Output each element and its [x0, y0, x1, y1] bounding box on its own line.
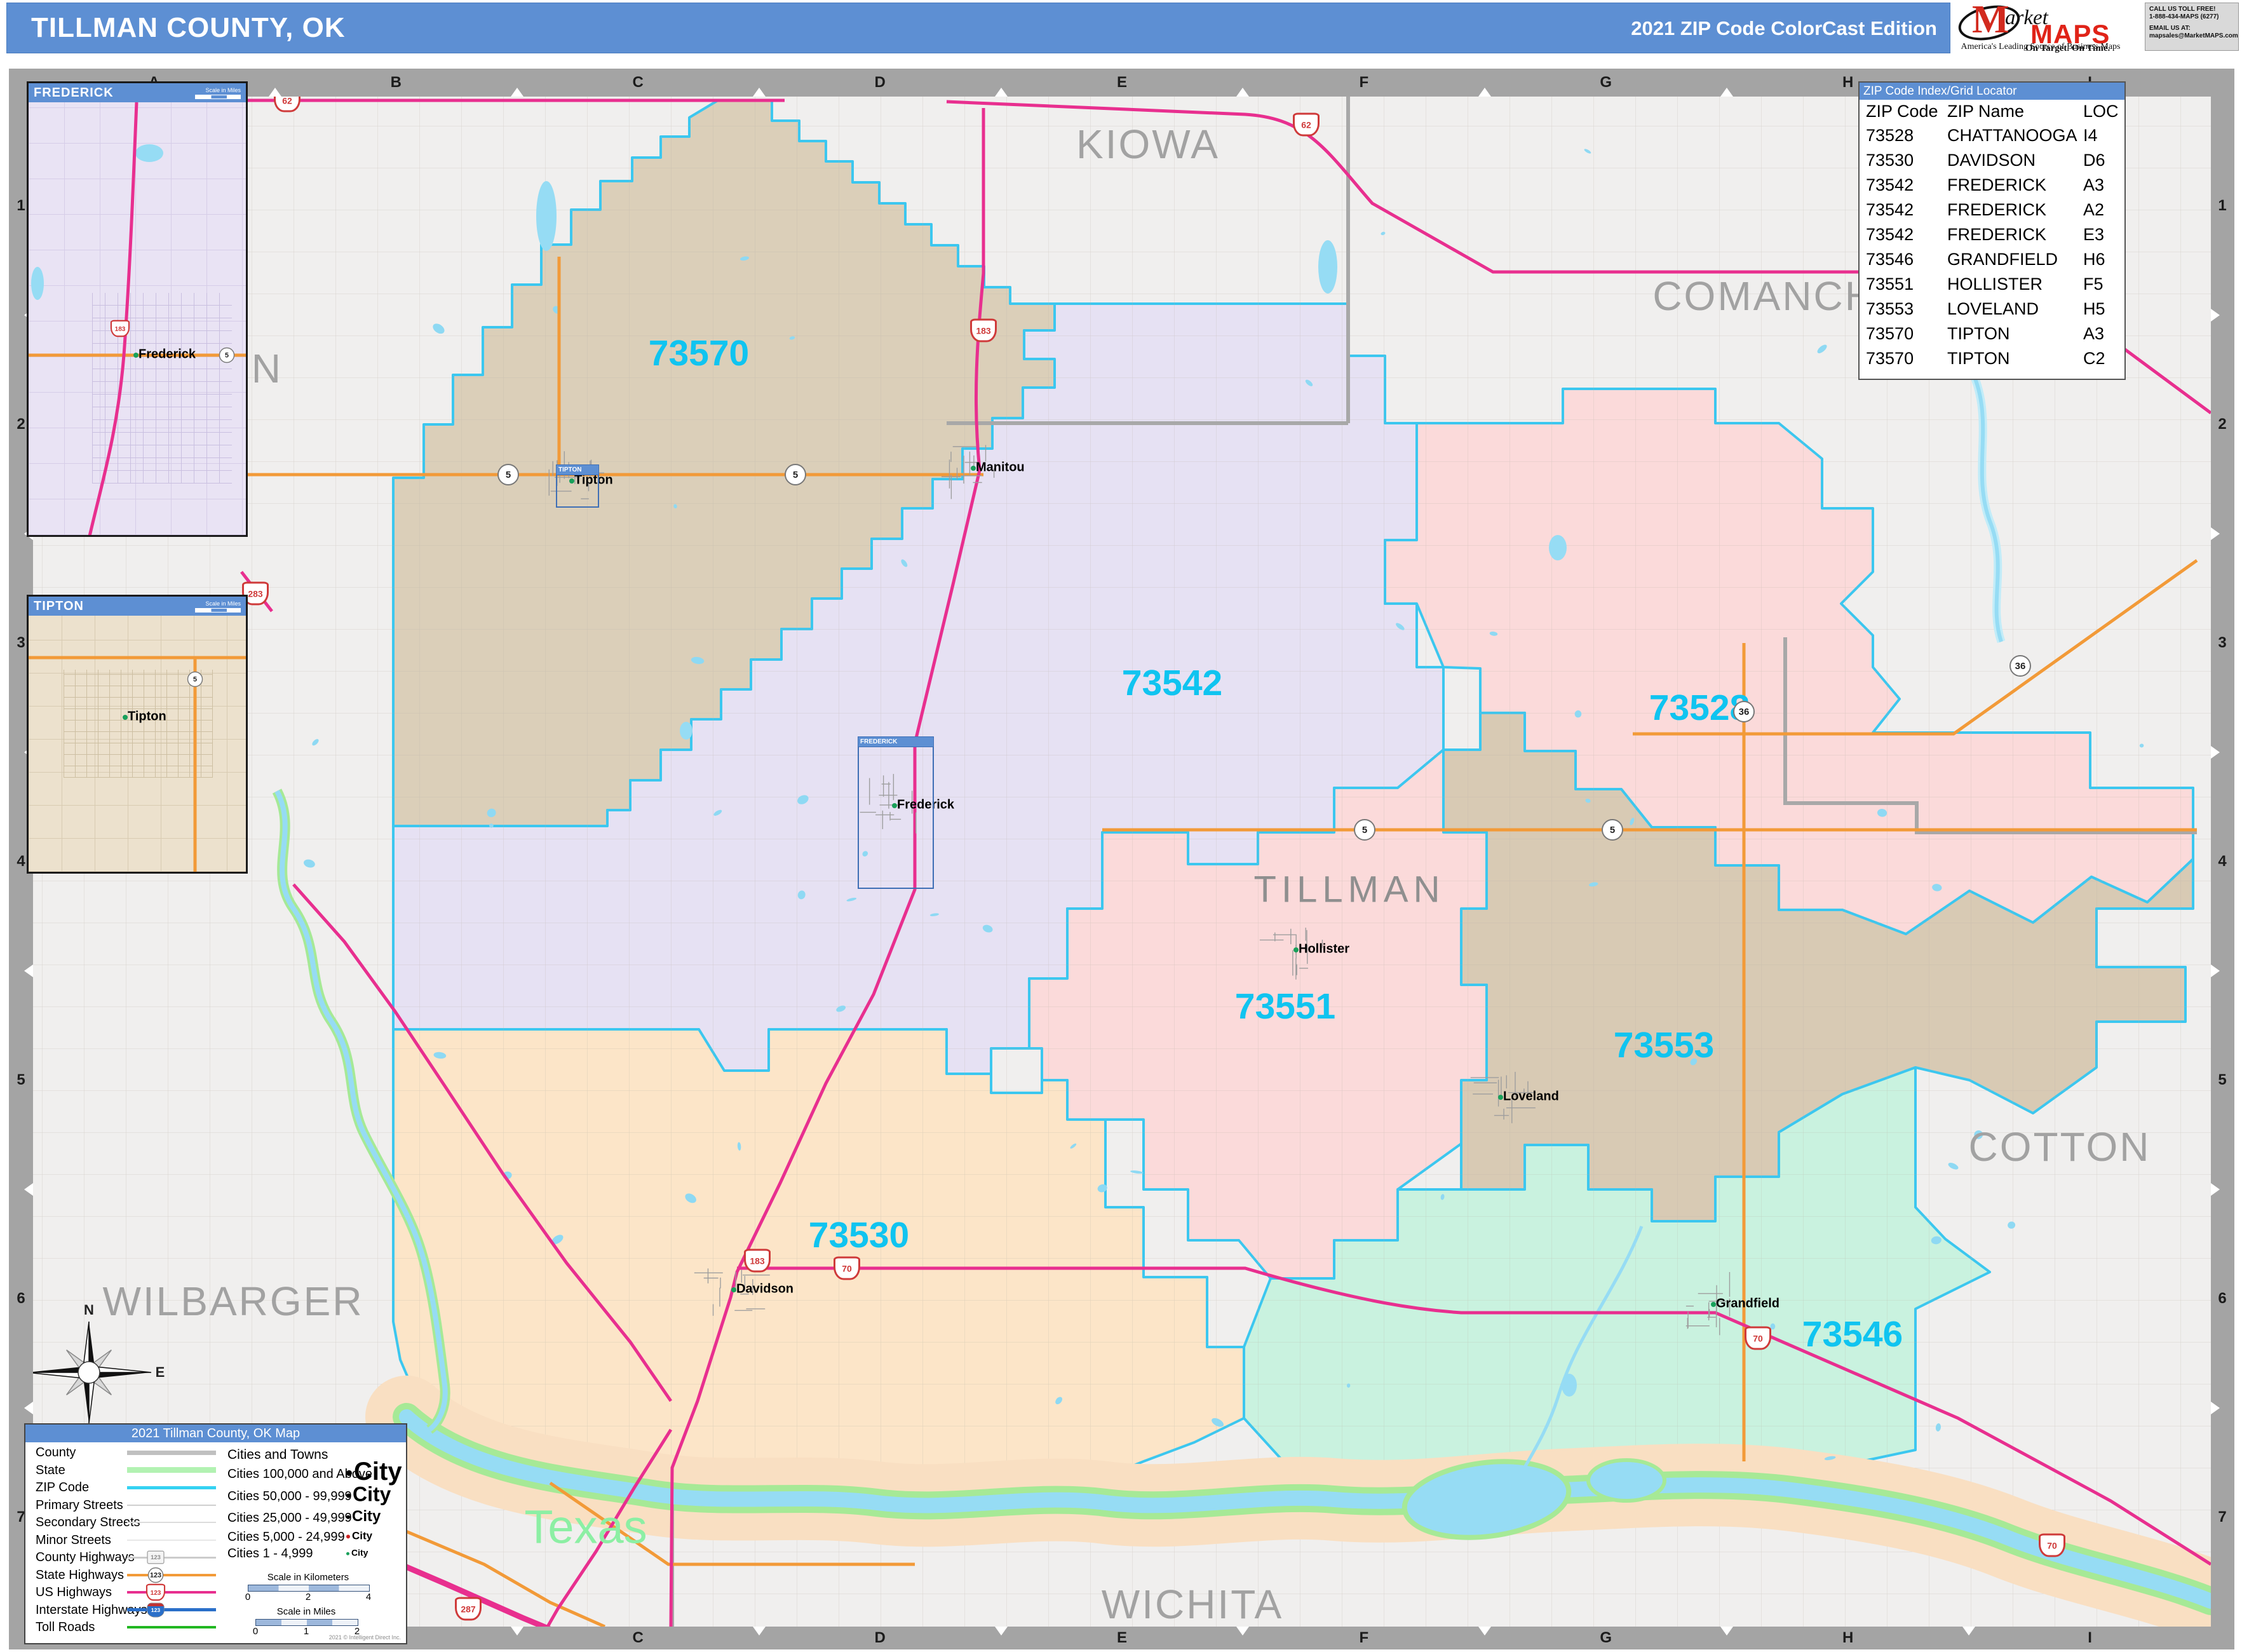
map-legend: 2021 Tillman County, OK Map CountyStateZ… [24, 1423, 407, 1644]
city-dot-loveland [1498, 1095, 1503, 1100]
inset-city-dot-frederick [133, 353, 138, 358]
grid-col-label-bottom-H: H [1842, 1629, 1853, 1647]
grid-notch-left [24, 1402, 33, 1414]
legend-label-cohwy: County Highways [36, 1550, 135, 1565]
legend-line-zip [127, 1486, 216, 1489]
grid-row-label-right-6: 6 [2218, 1290, 2226, 1308]
circle-highway-badge-36: 36 [2009, 655, 2031, 677]
legend-city-sample-2: City [346, 1508, 381, 1526]
inset-locator-label-tipton: TIPTON [556, 464, 599, 475]
grid-notch-right [2211, 746, 2220, 759]
zip-table-header-row: ZIP CodeZIP NameLOC [1860, 102, 2124, 126]
grid-col-label-G: G [1600, 74, 1612, 91]
zip-table-row-6: 73551HOLLISTERF5 [1860, 274, 2124, 299]
grid-row-label-3: 3 [17, 634, 25, 652]
inset-tipton-scalebar [195, 608, 241, 613]
legend-title: 2021 Tillman County, OK Map [25, 1425, 406, 1442]
loc-cell: A3 [2083, 175, 2104, 195]
zip-table-col-1: ZIP Name [1947, 102, 2024, 121]
inset-tipton-scale-label: Scale in Miles [205, 600, 241, 607]
grid-col-label-bottom-C: C [633, 1629, 644, 1647]
zip-code-cell: 73542 [1866, 200, 1914, 220]
circle-highway-badge-5: 5 [785, 464, 806, 485]
grid-row-label-right-5: 5 [2218, 1071, 2226, 1089]
zip-name-cell: FREDERICK [1947, 175, 2046, 195]
legend-scale-mi-tick-1: 1 [304, 1626, 309, 1637]
grid-row-label-6: 6 [17, 1290, 25, 1308]
legend-label-zip: ZIP Code [36, 1480, 89, 1495]
legend-city-class-label-1: Cities 50,000 - 99,999 [227, 1489, 352, 1504]
contact-call-2: 1-888-434-MAPS (6277) [2149, 13, 2234, 21]
legend-line-cohwy [127, 1557, 216, 1559]
grid-row-label-1: 1 [17, 197, 25, 215]
legend-label-ushwy: US Highways [36, 1585, 112, 1600]
zip-table-row-9: 73570TIPTONC2 [1860, 349, 2124, 374]
contact-email-2: mapsales@MarketMAPS.com [2149, 32, 2234, 40]
logo-subtitle-row: America's Leading Source of Business Map… [1939, 42, 2142, 52]
city-label-hollister: Hollister [1299, 942, 1349, 957]
zip-table-col-0: ZIP Code [1866, 102, 1938, 121]
lake-2 [1318, 240, 1337, 294]
us-highway-badge-287: 287 [455, 1597, 482, 1621]
grid-notch-bottom [995, 1627, 1008, 1635]
grid-col-label-E: E [1117, 74, 1127, 91]
legend-scale-km-title: Scale in Kilometers [238, 1572, 378, 1583]
legend-city-dot-2 [346, 1515, 350, 1519]
zip-label-73530: 73530 [809, 1214, 910, 1256]
city-dot-davidson [731, 1287, 736, 1292]
legend-scale-mi-tick-0: 0 [253, 1626, 258, 1637]
lake-5 [680, 722, 692, 740]
grid-col-label-C: C [633, 74, 644, 91]
zip-table-row-1: 73530DAVIDSOND6 [1860, 151, 2124, 175]
loc-cell: C2 [2083, 349, 2105, 369]
zip-table-row-2: 73542FREDERICKA3 [1860, 175, 2124, 200]
lake-1 [536, 181, 557, 251]
grid-col-label-bottom-G: G [1600, 1629, 1612, 1647]
grid-row-label-right-2: 2 [2218, 416, 2226, 433]
grid-notch-bottom [753, 1627, 766, 1635]
loc-cell: E3 [2083, 225, 2104, 245]
state-label-texas: Texas [524, 1500, 647, 1554]
county-label-kiowa: KIOWA [1076, 121, 1220, 168]
legend-line-street2 [127, 1522, 216, 1523]
grid-row-label-right-3: 3 [2218, 634, 2226, 652]
inset-frederick-scalebar [195, 95, 241, 99]
grid-row-label-2: 2 [17, 416, 25, 433]
zip-name-cell: HOLLISTER [1947, 274, 2043, 294]
city-dot-grandfield [1711, 1302, 1716, 1307]
zip-label-73551: 73551 [1235, 985, 1336, 1027]
us-highway-badge-70: 70 [2039, 1534, 2065, 1557]
legend-copyright: 2021 © Intelligent Direct Inc. [329, 1634, 401, 1641]
zip-code-cell: 73546 [1866, 250, 1914, 269]
legend-line-sthwy [127, 1574, 216, 1576]
us-highway-badge-183: 183 [970, 319, 997, 342]
grid-row-label-5: 5 [17, 1071, 25, 1089]
title-bar: TILLMAN COUNTY, OK 2021 ZIP Code ColorCa… [6, 3, 1950, 53]
grid-col-label-F: F [1360, 74, 1369, 91]
legend-line-county [127, 1451, 216, 1455]
inset-city-label-frederick: Frederick [138, 348, 196, 362]
logo-m: M [1972, 0, 2009, 43]
loc-cell: H6 [2083, 250, 2105, 269]
legend-badge-inthwy: 123 [147, 1602, 164, 1617]
inset-frederick-header: FREDERICK Scale in Miles [29, 83, 246, 102]
legend-line-inthwy [127, 1608, 216, 1611]
legend-scale-km-tick-1: 2 [306, 1592, 311, 1602]
grid-notch-top [995, 88, 1008, 97]
inset-city-dot-tipton [123, 715, 128, 720]
legend-city-class-label-4: Cities 1 - 4,999 [227, 1547, 313, 1561]
legend-label-toll: Toll Roads [36, 1620, 95, 1635]
zip-table-row-8: 73570TIPTONA3 [1860, 324, 2124, 349]
zip-code-cell: 73570 [1866, 324, 1914, 344]
legend-city-dot-1 [346, 1494, 351, 1498]
legend-label-sthwy: State Highways [36, 1568, 124, 1583]
grid-notch-bottom [1962, 1627, 1975, 1635]
legend-line-street1 [127, 1505, 216, 1506]
zip-code-cell: 73570 [1866, 349, 1914, 369]
legend-city-dot-4 [346, 1552, 349, 1555]
grid-col-label-bottom-E: E [1117, 1629, 1127, 1647]
zip-name-cell: FREDERICK [1947, 200, 2046, 220]
legend-scale-km-tick-2: 4 [366, 1592, 371, 1602]
loc-cell: A2 [2083, 200, 2104, 220]
legend-line-toll [127, 1626, 216, 1628]
legend-line-ushwy [127, 1591, 216, 1594]
legend-badge-cohwy: 123 [147, 1551, 164, 1564]
zip-table-row-5: 73546GRANDFIELDH6 [1860, 250, 2124, 274]
legend-city-sample-1: City [346, 1483, 391, 1506]
inset-locator-box-tipton: TIPTON [556, 464, 599, 508]
contact-call-1: CALL US TOLL FREE! [2149, 6, 2234, 13]
inset-frederick-scale-label: Scale in Miles [205, 87, 241, 93]
us-highway-badge-62: 62 [1293, 113, 1320, 137]
legend-label-street1: Primary Streets [36, 1498, 123, 1513]
grid-notch-right [2211, 1183, 2220, 1196]
grid-notch-bottom [1720, 1627, 1733, 1635]
zip-name-cell: CHATTANOOGA [1947, 126, 2077, 146]
grid-row-label-right-7: 7 [2218, 1508, 2226, 1526]
inset-tipton-body: Tipton5 [29, 616, 246, 872]
zip-code-cell: 73551 [1866, 274, 1914, 294]
grid-notch-right [2211, 527, 2220, 540]
zip-label-73542: 73542 [1122, 662, 1223, 704]
legend-scale-km-tick-0: 0 [245, 1592, 250, 1602]
legend-label-county: County [36, 1446, 76, 1460]
logo-subtitle-text: America's Leading Source of Business Map… [1961, 42, 2121, 51]
page: { "title_bar":{"title":"TILLMAN COUNTY, … [0, 0, 2242, 1652]
legend-city-dot-3 [346, 1534, 350, 1538]
legend-city-class-label-2: Cities 25,000 - 49,999 [227, 1511, 352, 1526]
legend-badge-ushwy: 123 [146, 1584, 165, 1601]
county-label-wichita: WICHITA [1102, 1581, 1283, 1628]
legend-cities-title: Cities and Towns [227, 1447, 328, 1463]
grid-notch-right [2211, 965, 2220, 977]
legend-badge-sthwy: 123 [148, 1567, 163, 1582]
loc-cell: I4 [2083, 126, 2098, 146]
legend-city-class-label-3: Cities 5,000 - 24,999 [227, 1530, 345, 1545]
inset-map-frederick: FREDERICK Scale in Miles Frederick1835 [27, 81, 248, 537]
legend-city-sample-0: City [346, 1458, 402, 1486]
legend-label-street3: Minor Streets [36, 1533, 111, 1548]
zip-label-73570: 73570 [649, 332, 750, 374]
inset-badge-183: 183 [111, 320, 130, 337]
zip-table-row-7: 73553LOVELANDH5 [1860, 299, 2124, 324]
grid-notch-top [511, 88, 523, 97]
county-label-tillman: TILLMAN [1254, 869, 1445, 911]
zip-table-row-4: 73542FREDERICKE3 [1860, 225, 2124, 250]
zip-name-cell: FREDERICK [1947, 225, 2046, 245]
grid-notch-right [2211, 1402, 2220, 1414]
loc-cell: F5 [2083, 274, 2104, 294]
inset-tipton-header: TIPTON Scale in Miles [29, 597, 246, 616]
zip-table-row-3: 73542FREDERICKA2 [1860, 200, 2124, 225]
legend-scale-mi-bar [255, 1619, 358, 1626]
legend-label-state: State [36, 1463, 65, 1478]
grid-notch-left [24, 965, 33, 977]
county-label-cotton: COTTON [1968, 1123, 2151, 1170]
circle-highway-badge-5: 5 [497, 464, 519, 485]
lake-3 [1549, 535, 1567, 560]
contact-box: CALL US TOLL FREE! 1-888-434-MAPS (6277)… [2145, 3, 2239, 51]
grid-notch-bottom [1236, 1627, 1249, 1635]
zip-code-cell: 73530 [1866, 151, 1914, 170]
river-lake-2 [1588, 1460, 1665, 1501]
city-dot-hollister [1293, 947, 1299, 952]
grid-col-label-B: B [391, 74, 402, 91]
lake-4 [1562, 1374, 1577, 1397]
zip-index-table: ZIP Code Index/Grid Locator ZIP CodeZIP … [1858, 81, 2126, 380]
inset-badge-5: 5 [219, 348, 234, 363]
zip-table-row-0: 73528CHATTANOOGAI4 [1860, 126, 2124, 151]
inset-locator-label-frederick: FREDERICK [858, 736, 934, 747]
county-label-wilbarger: WILBARGER [102, 1278, 363, 1325]
zip-code-cell: 73542 [1866, 175, 1914, 195]
zip-label-73553: 73553 [1614, 1024, 1715, 1066]
zip-code-cell: 73528 [1866, 126, 1914, 146]
city-label-davidson: Davidson [736, 1282, 793, 1297]
city-label-grandfield: Grandfield [1716, 1297, 1779, 1311]
page-title: TILLMAN COUNTY, OK [31, 12, 346, 44]
circle-highway-badge-36: 36 [1733, 701, 1755, 722]
circle-highway-badge-5: 5 [1354, 819, 1375, 841]
grid-notch-top [1236, 88, 1249, 97]
zip-name-cell: TIPTON [1947, 349, 2010, 369]
inset-map-tipton: TIPTON Scale in Miles Tipton5 [27, 595, 248, 874]
grid-row-label-right-4: 4 [2218, 853, 2226, 870]
legend-scale-km-bar [248, 1585, 370, 1592]
contact-email-1: EMAIL US AT: [2149, 25, 2234, 32]
grid-col-label-H: H [1842, 74, 1853, 91]
legend-scale-mi-title: Scale in Miles [236, 1606, 376, 1617]
inset-frederick-body: Frederick1835 [29, 102, 246, 535]
legend-city-sample-3: City [346, 1529, 372, 1542]
loc-cell: A3 [2083, 324, 2104, 344]
grid-notch-left [24, 1183, 33, 1196]
loc-cell: D6 [2083, 151, 2105, 170]
grid-notch-top [269, 88, 281, 97]
grid-notch-top [1478, 88, 1491, 97]
grid-col-label-D: D [874, 74, 885, 91]
us-highway-badge-70: 70 [1745, 1327, 1771, 1350]
grid-col-label-bottom-F: F [1360, 1629, 1369, 1647]
city-label-loveland: Loveland [1503, 1090, 1559, 1104]
compass-label-n: N [84, 1302, 94, 1318]
edition-label: 2021 ZIP Code ColorCast Edition [1631, 17, 1937, 40]
grid-notch-bottom [511, 1627, 523, 1635]
grid-notch-bottom [1478, 1627, 1491, 1635]
zip-table-col-2: LOC [2083, 102, 2119, 121]
zip-code-cell: 73542 [1866, 225, 1914, 245]
grid-notch-right [2211, 309, 2220, 322]
grid-col-label-bottom-D: D [874, 1629, 885, 1647]
city-dot-manitou [971, 466, 976, 471]
zip-index-title: ZIP Code Index/Grid Locator [1860, 83, 2124, 100]
zip-name-cell: LOVELAND [1947, 299, 2039, 319]
us-highway-badge-183: 183 [744, 1249, 771, 1273]
grid-row-label-4: 4 [17, 853, 25, 870]
zip-name-cell: TIPTON [1947, 324, 2010, 344]
inset-tipton-title: TIPTON [34, 599, 84, 614]
us-highway-badge-70: 70 [834, 1257, 860, 1280]
inset-frederick-roads [29, 102, 246, 535]
zip-name-cell: GRANDFIELD [1947, 250, 2058, 269]
zip-code-cell: 73553 [1866, 299, 1914, 319]
city-label-manitou: Manitou [976, 461, 1025, 475]
zip-label-73546: 73546 [1802, 1313, 1903, 1355]
legend-city-dot-0 [346, 1470, 352, 1476]
grid-notch-top [753, 88, 766, 97]
loc-cell: H5 [2083, 299, 2105, 319]
grid-row-label-right-1: 1 [2218, 197, 2226, 215]
legend-line-state [127, 1467, 216, 1473]
inset-tipton-roads [29, 616, 246, 872]
circle-highway-badge-5: 5 [1602, 819, 1623, 841]
grid-col-label-bottom-I: I [2088, 1629, 2092, 1647]
grid-notch-top [1720, 88, 1733, 97]
legend-city-sample-4: City [346, 1548, 368, 1558]
inset-city-label-tipton: Tipton [128, 710, 166, 724]
inset-frederick-title: FREDERICK [34, 86, 114, 100]
zip-name-cell: DAVIDSON [1947, 151, 2036, 170]
legend-line-street3 [127, 1540, 216, 1541]
compass-label-e: E [156, 1364, 165, 1381]
legend-label-street2: Secondary Streets [36, 1515, 140, 1530]
inset-locator-box-frederick: FREDERICK [858, 736, 934, 889]
inset-badge-5: 5 [187, 672, 203, 687]
